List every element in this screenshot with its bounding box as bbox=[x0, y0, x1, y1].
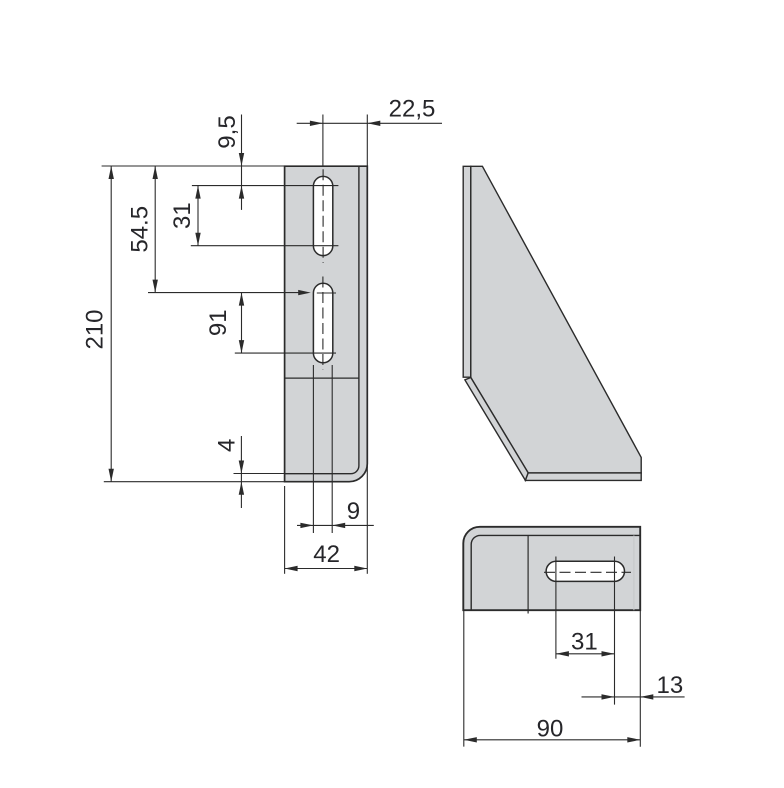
svg-text:90: 90 bbox=[537, 716, 564, 743]
svg-text:31: 31 bbox=[571, 629, 598, 656]
svg-text:31: 31 bbox=[169, 202, 196, 229]
svg-text:54.5: 54.5 bbox=[127, 206, 154, 253]
svg-text:9: 9 bbox=[347, 498, 360, 525]
svg-text:13: 13 bbox=[657, 672, 684, 699]
svg-text:4: 4 bbox=[213, 439, 240, 452]
svg-text:210: 210 bbox=[82, 309, 109, 349]
svg-text:91: 91 bbox=[205, 309, 232, 336]
svg-text:22,5: 22,5 bbox=[389, 96, 436, 123]
svg-text:42: 42 bbox=[313, 541, 340, 568]
svg-text:9,5: 9,5 bbox=[214, 115, 241, 148]
